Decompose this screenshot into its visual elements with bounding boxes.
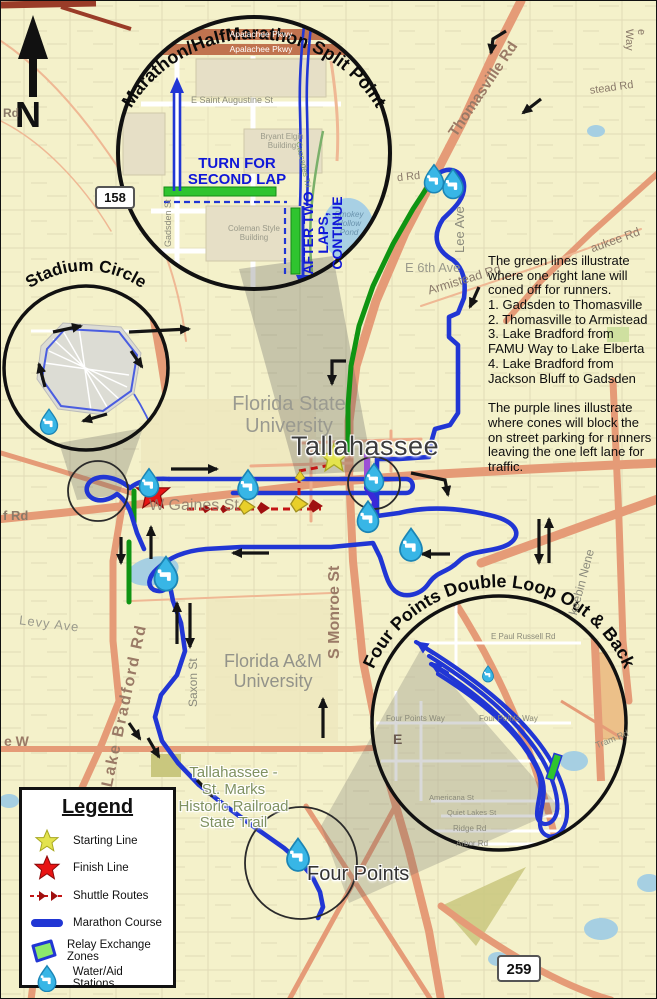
legend-title: Legend <box>28 796 167 819</box>
legend-row-finish: Finish Line <box>28 855 167 883</box>
marathon-course-icon <box>28 917 66 929</box>
legend-row-start: Starting Line <box>28 827 167 855</box>
water-aid-drop-icon <box>28 964 66 992</box>
legend-row-water: Water/Aid Stations <box>28 965 167 993</box>
legend-label: Relay Exchange Zones <box>67 939 167 963</box>
legend-label: Water/Aid Stations <box>73 966 167 990</box>
legend-box: Legend Starting Line Finish Line Shuttle… <box>19 787 176 988</box>
shield-158: 158 <box>104 190 126 205</box>
legend-row-course: Marathon Course <box>28 910 167 938</box>
shield-259: 259 <box>506 961 531 978</box>
shuttle-route-icon <box>28 889 66 903</box>
lane-notes: The green lines illustrate where one rig… <box>488 254 657 475</box>
legend-label: Starting Line <box>73 835 138 847</box>
legend-row-relay: Relay Exchange Zones <box>28 937 167 965</box>
finish-line-star-icon <box>28 855 66 881</box>
relay-exchange-zone-icon <box>28 938 60 964</box>
legend-row-shuttle: Shuttle Routes <box>28 882 167 910</box>
race-course-map: Marathon/HalfMarathon Split Point Stadiu… <box>0 0 657 999</box>
legend-label: Finish Line <box>73 862 129 874</box>
green-lines-note: The green lines illustrate where one rig… <box>488 254 657 386</box>
legend-label: Shuttle Routes <box>73 890 148 902</box>
purple-lines-note: The purple lines illustrate where cones … <box>488 401 657 474</box>
legend-label: Marathon Course <box>73 917 162 929</box>
starting-line-star-icon <box>28 828 66 854</box>
